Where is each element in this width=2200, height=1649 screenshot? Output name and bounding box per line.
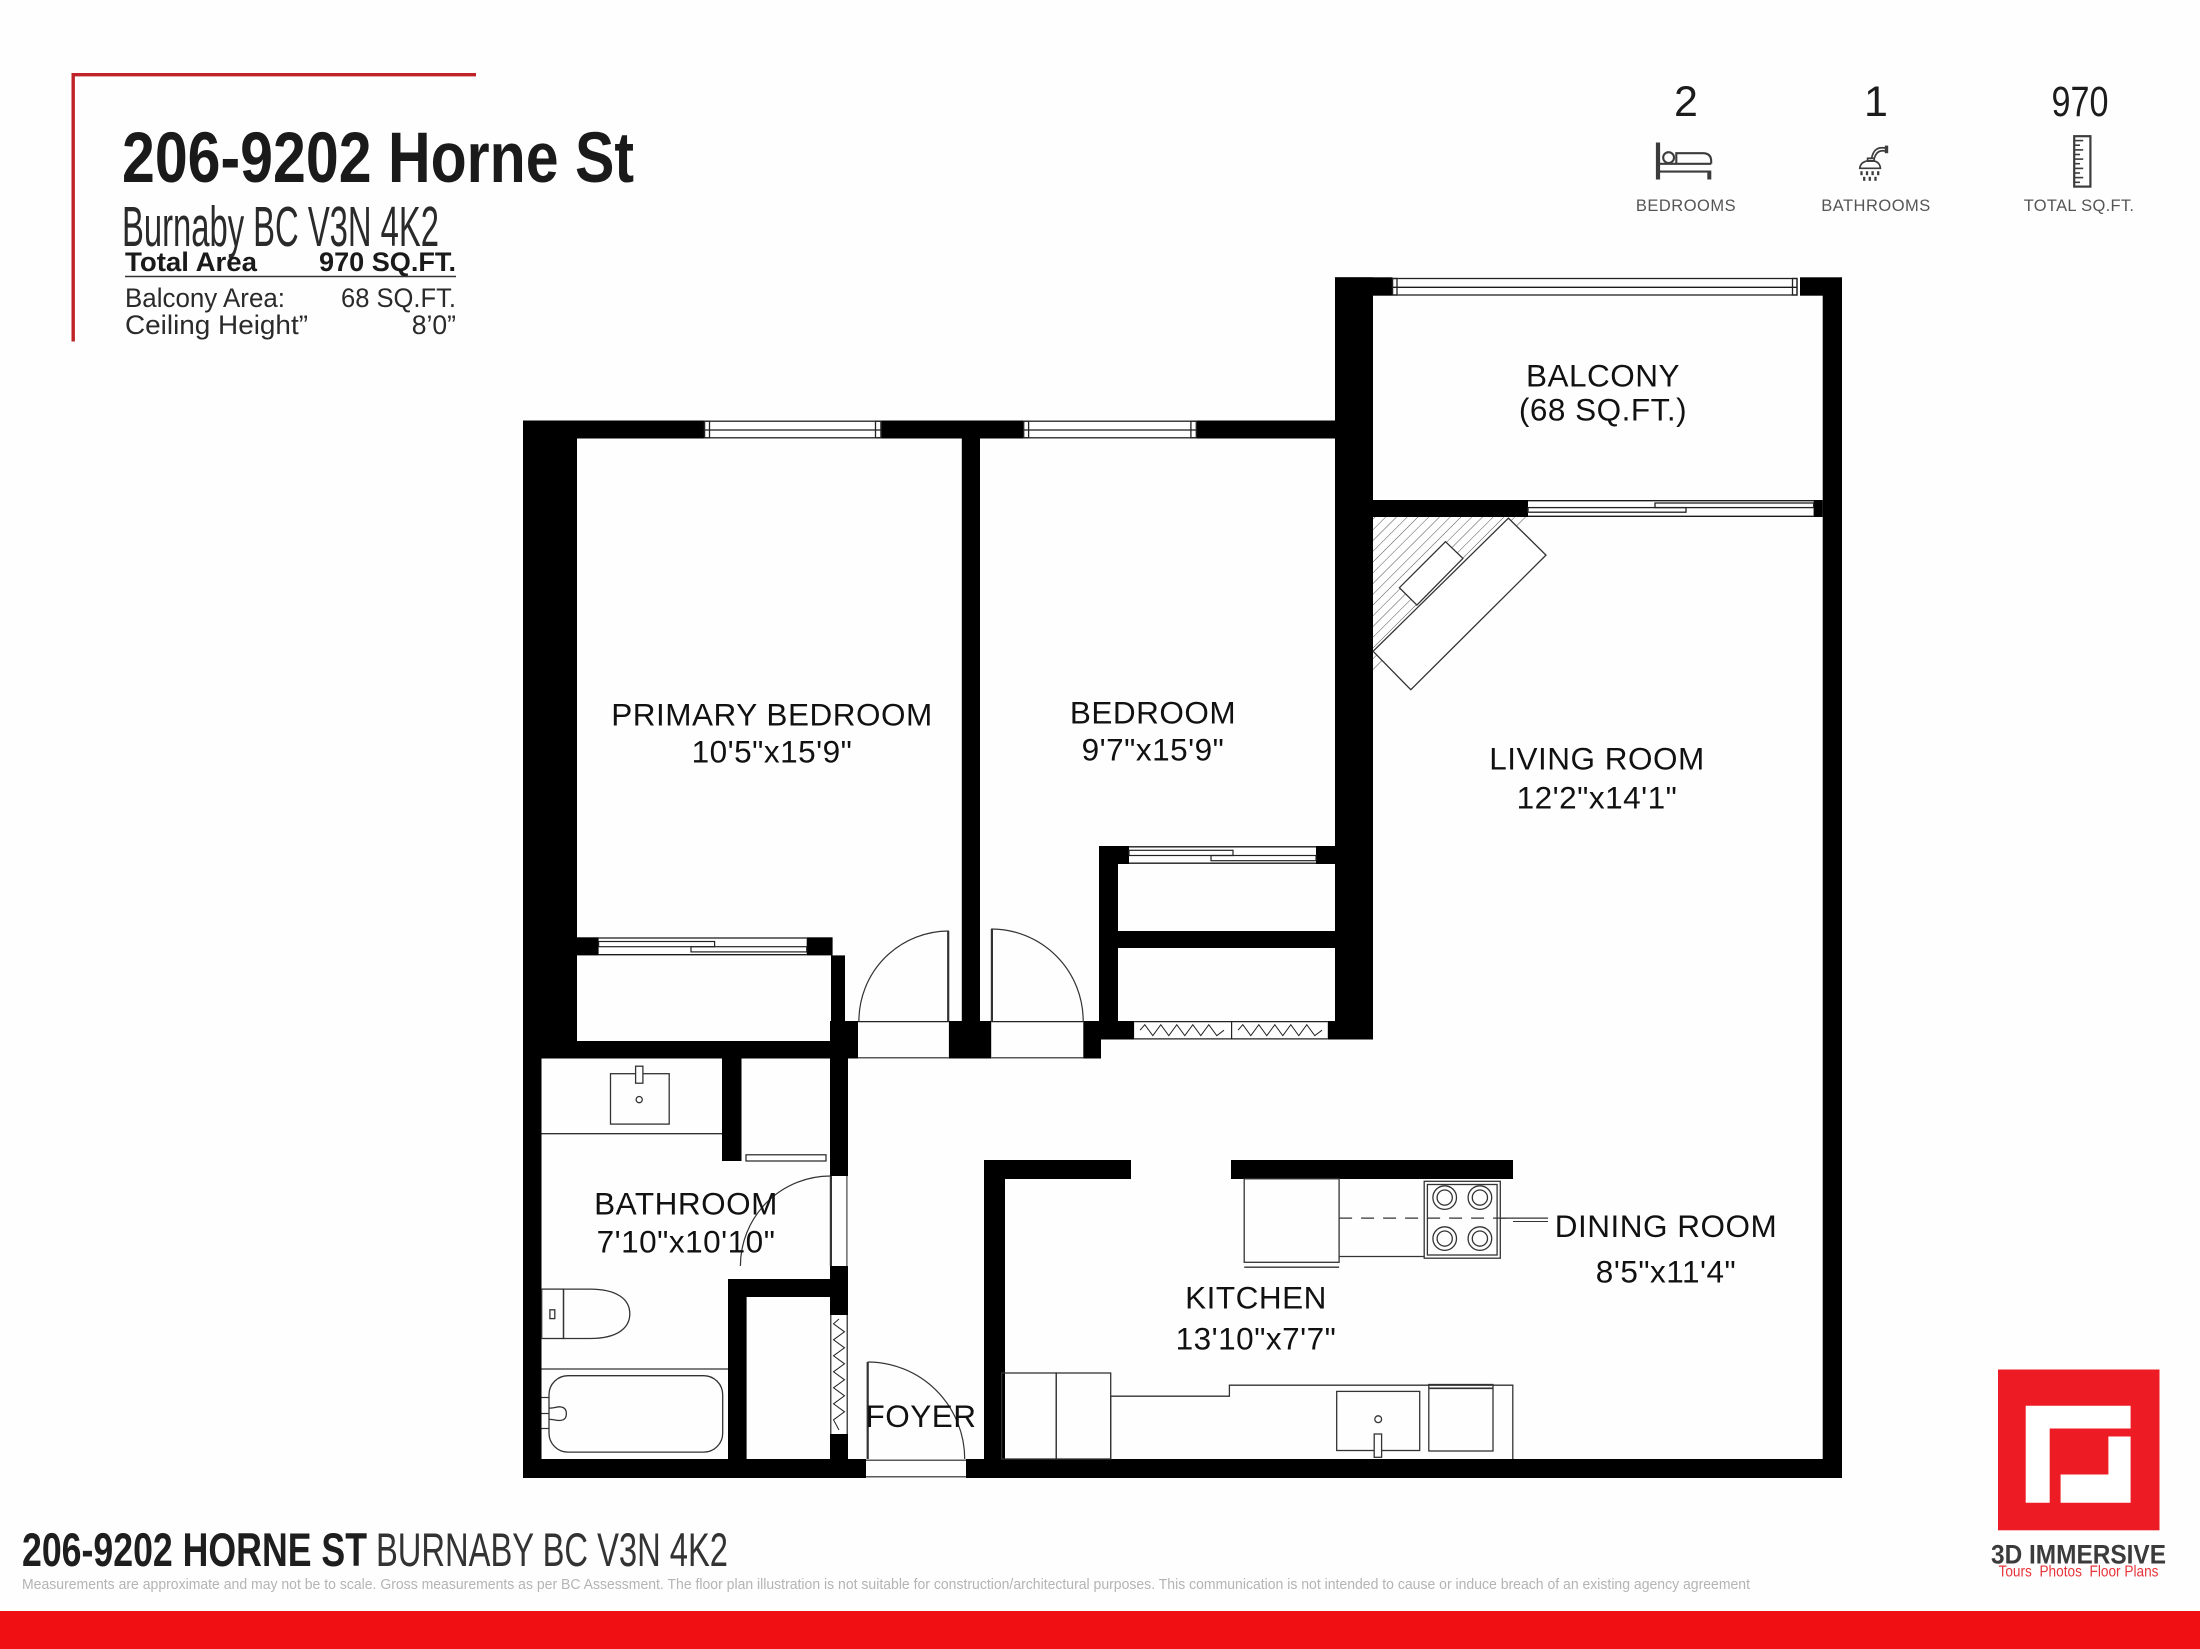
svg-text:10'5"x15'9": 10'5"x15'9" xyxy=(692,733,853,769)
svg-text:970 SQ.FT.: 970 SQ.FT. xyxy=(319,247,456,277)
svg-text:8'5"x11'4": 8'5"x11'4" xyxy=(1596,1253,1736,1289)
svg-text:PRIMARY BEDROOM: PRIMARY BEDROOM xyxy=(611,696,932,732)
svg-text:68 SQ.FT.: 68 SQ.FT. xyxy=(341,283,456,313)
svg-text:DINING ROOM: DINING ROOM xyxy=(1555,1208,1778,1244)
svg-text:8’0”: 8’0” xyxy=(412,310,456,340)
svg-text:2: 2 xyxy=(1674,78,1698,126)
svg-text:BEDROOMS: BEDROOMS xyxy=(1636,197,1736,215)
svg-text:Ceiling Height”: Ceiling Height” xyxy=(125,310,308,340)
svg-text:1: 1 xyxy=(1864,78,1888,126)
svg-text:12'2"x14'1": 12'2"x14'1" xyxy=(1517,779,1678,815)
svg-text:BALCONY: BALCONY xyxy=(1526,357,1680,393)
svg-text:Tours Photos Floor Plans: Tours Photos Floor Plans xyxy=(1999,1564,2159,1581)
svg-text:206-9202 Horne St: 206-9202 Horne St xyxy=(122,119,634,198)
svg-text:LIVING ROOM: LIVING ROOM xyxy=(1489,741,1705,777)
svg-text:TOTAL SQ.FT.: TOTAL SQ.FT. xyxy=(2024,197,2135,215)
svg-text:970: 970 xyxy=(2052,78,2109,126)
svg-text:Total Area: Total Area xyxy=(125,247,257,277)
svg-text:BEDROOM: BEDROOM xyxy=(1070,694,1236,730)
svg-text:7'10"x10'10": 7'10"x10'10" xyxy=(597,1223,776,1259)
svg-text:FOYER: FOYER xyxy=(865,1398,976,1434)
svg-text:BATHROOM: BATHROOM xyxy=(594,1185,778,1221)
svg-text:(68 SQ.FT.): (68 SQ.FT.) xyxy=(1519,391,1687,427)
svg-text:Measurements are approximate a: Measurements are approximate and may not… xyxy=(22,1577,1750,1593)
svg-text:Balcony Area:: Balcony Area: xyxy=(125,283,285,313)
svg-text:9'7"x15'9": 9'7"x15'9" xyxy=(1082,731,1225,767)
svg-text:KITCHEN: KITCHEN xyxy=(1185,1279,1327,1315)
svg-text:BATHROOMS: BATHROOMS xyxy=(1821,197,1931,215)
svg-text:13'10"x7'7": 13'10"x7'7" xyxy=(1176,1320,1337,1356)
